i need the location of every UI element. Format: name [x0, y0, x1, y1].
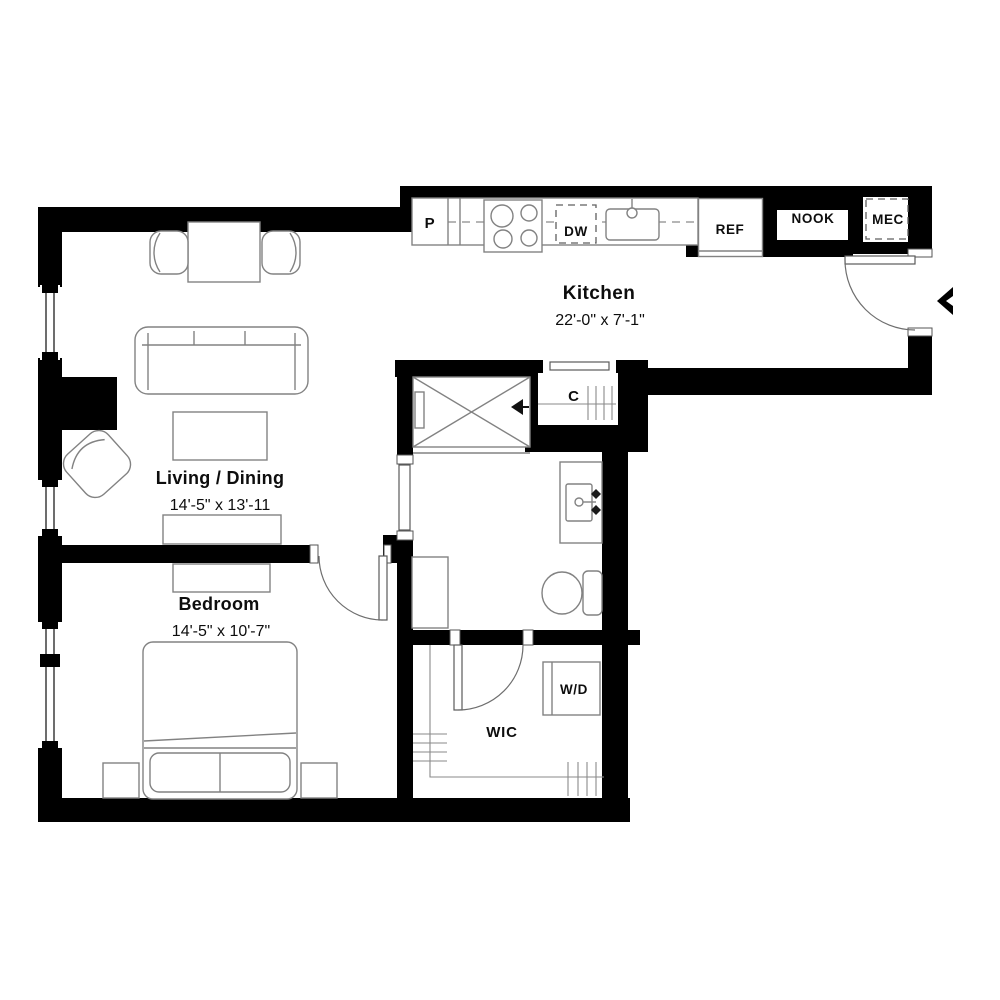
stove: [484, 200, 542, 252]
wic-door-jamb: [450, 630, 460, 645]
chair-seat: [262, 231, 300, 274]
entry-arrow: [937, 287, 953, 315]
entry-door-swing: [845, 260, 915, 330]
burner: [521, 205, 537, 221]
coffee-table: [173, 412, 267, 460]
pantry-label: P: [425, 215, 436, 232]
living-label: Living / Dining: [156, 468, 285, 488]
window-bedroom-2: [40, 667, 60, 748]
bath-cabinet: [412, 557, 448, 628]
console-table: [163, 515, 281, 544]
floor-plan-svg: Kitchen 22'-0" x 7'-1" Living / Dining 1…: [0, 0, 1000, 1000]
nook-base-wall: [767, 240, 853, 257]
kitchen-left-stub: [400, 186, 412, 232]
entry-door-leaf: [845, 256, 915, 264]
window-bedroom-1: [40, 622, 60, 654]
bed: [143, 642, 297, 799]
burner: [494, 230, 512, 248]
nightstand-right: [301, 763, 337, 798]
wic-door-swing: [458, 645, 523, 710]
dishwasher-label: DW: [564, 224, 588, 239]
wic-door-leaf: [454, 645, 462, 710]
coat-closet-label: C: [568, 388, 580, 405]
refrigerator-label: REF: [716, 222, 745, 237]
chair-seat: [150, 231, 188, 274]
burner: [521, 230, 537, 246]
floor-plan-page: Kitchen 22'-0" x 7'-1" Living / Dining 1…: [0, 0, 1000, 1000]
burner: [491, 205, 513, 227]
bottom-wall: [38, 798, 630, 822]
window-opening: [40, 480, 60, 536]
toilet-bowl: [542, 572, 582, 614]
windows: [40, 285, 60, 748]
mec-base-wall: [848, 240, 912, 254]
window-opening: [40, 285, 60, 360]
sofa: [135, 327, 308, 394]
bath-door-jamb: [397, 531, 413, 540]
kitchen-bottom-wall: [648, 368, 932, 395]
toilet-tank: [583, 571, 602, 615]
dresser: [173, 564, 270, 592]
wic-fixtures: [413, 645, 604, 796]
nightstand-left: [103, 763, 139, 798]
closet-rod-hatch-bottom: [568, 762, 596, 796]
window-cap: [42, 480, 58, 487]
shower: [413, 377, 530, 453]
structural-column: [57, 377, 117, 430]
below-closet-wall: [530, 425, 648, 452]
bedroom-dims: 14'-5" x 10'-7": [172, 623, 270, 640]
window-cap: [42, 622, 58, 629]
window-opening: [40, 667, 60, 748]
bedroom-door-swing: [319, 556, 383, 620]
living-dims: 14'-5" x 13'-11: [170, 497, 271, 514]
window-cap: [42, 352, 58, 360]
vanity: [560, 462, 602, 543]
bedroom-door-leaf: [379, 556, 387, 620]
sofa-outline: [135, 327, 308, 394]
kitchen-dims: 22'-0" x 7'-1": [555, 312, 645, 329]
washer-dryer-label: W/D: [560, 682, 588, 697]
dining-chair-right: [262, 231, 300, 274]
window-living-1: [40, 285, 60, 360]
mechanical-label: MEC: [872, 212, 904, 227]
bedroom-label: Bedroom: [178, 594, 259, 614]
nook-label: NOOK: [792, 211, 835, 226]
armchair: [58, 425, 136, 503]
bath-door-panel: [399, 465, 410, 530]
above-shower-wall: [395, 360, 530, 377]
kitchen-label: Kitchen: [563, 283, 635, 304]
toilet: [542, 571, 602, 615]
window-cap: [42, 285, 58, 293]
wic-label: WIC: [486, 724, 518, 741]
bedroom-wall: [38, 545, 318, 563]
hall-bath-wall-lower: [397, 535, 413, 798]
hall-bath-wall-upper: [397, 360, 413, 460]
bedroom-door-jamb: [310, 545, 318, 563]
window-cap: [42, 529, 58, 536]
dining-chair-left: [150, 231, 188, 274]
window-cap: [42, 741, 58, 748]
closet-door-panel: [550, 362, 609, 370]
armchair-seat: [58, 425, 136, 503]
faucet: [627, 208, 637, 218]
bath-wic-right-wall: [602, 452, 628, 802]
left-wall-mullion: [40, 654, 60, 667]
entry-door-jamb: [908, 328, 932, 336]
wic-door-jamb: [523, 630, 533, 645]
bath-door-jamb: [397, 455, 413, 464]
dining-table: [188, 222, 260, 282]
window-living-2: [40, 480, 60, 536]
